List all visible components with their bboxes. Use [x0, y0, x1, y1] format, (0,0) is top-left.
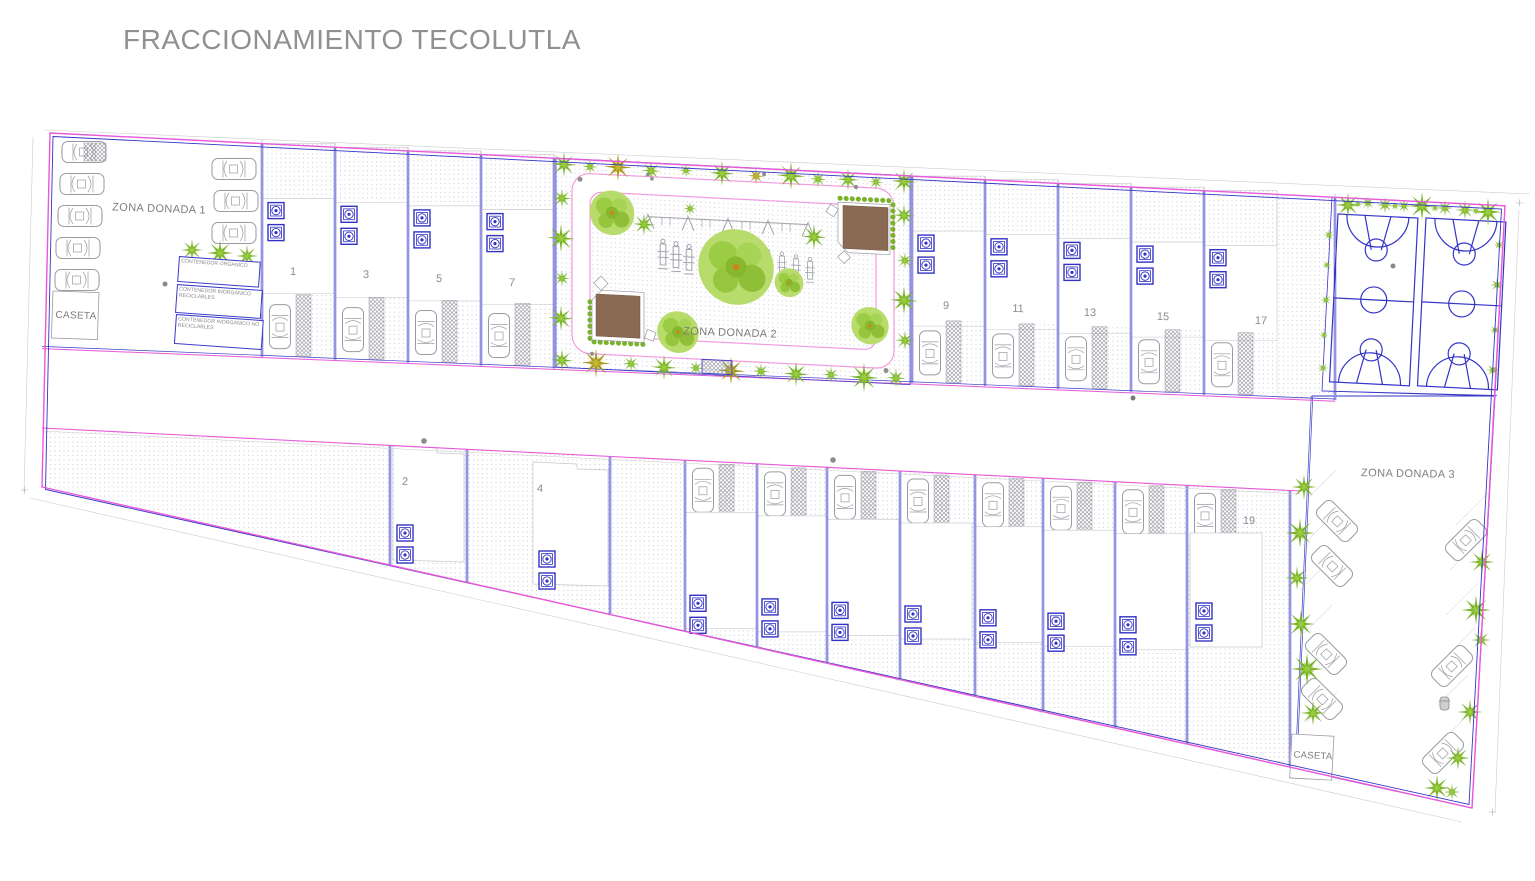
- car-icon: [212, 223, 256, 244]
- car-icon: [60, 174, 104, 195]
- caseta-nw-box: [51, 291, 99, 340]
- lot-9: [912, 176, 985, 383]
- lot-17: [1204, 191, 1277, 395]
- rock: [1391, 264, 1396, 269]
- truck-bed-hatch: [84, 143, 106, 161]
- site-plan-drawing: [0, 0, 1535, 881]
- motorcycle-icon: [1439, 697, 1450, 710]
- lot-5: [408, 151, 481, 363]
- park-bench: [702, 359, 732, 375]
- car-icon: [55, 270, 99, 291]
- site-plan-canvas: FRACCIONAMIENTO TECOLUTLA ZONA DONADA 1 …: [0, 0, 1535, 881]
- lot-15: [1131, 187, 1204, 392]
- lot-2: [393, 446, 464, 563]
- car-icon: [212, 159, 256, 180]
- car-icon: [58, 206, 102, 227]
- lot-1: [262, 144, 335, 357]
- rock: [163, 282, 168, 287]
- container-inorganic-nonrecyclable-box: CONTENEDOR INORGANICO NO RECICLABLES: [174, 314, 264, 350]
- lot-7: [481, 155, 554, 366]
- manhole: [830, 457, 836, 463]
- south-leftover-triangle: [42, 428, 390, 565]
- lot-3: [335, 147, 408, 359]
- lot-11: [985, 180, 1058, 386]
- car-icon: [214, 191, 258, 212]
- car-icon: [56, 238, 100, 259]
- container-inorganic-recyclable-box: CONTENEDOR INORGANICO RECICLABLES: [175, 284, 263, 319]
- manhole: [1131, 396, 1136, 401]
- manhole: [421, 438, 427, 444]
- lot-13: [1058, 183, 1131, 388]
- park-zona-donada-2: [547, 150, 918, 395]
- lot-4: [533, 462, 608, 589]
